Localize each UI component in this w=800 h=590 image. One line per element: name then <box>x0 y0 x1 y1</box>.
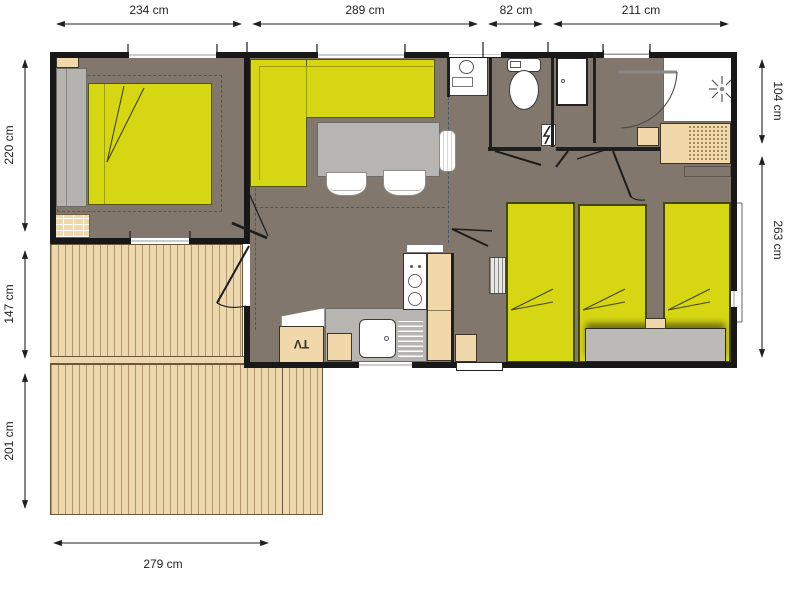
dim-label-left-1: 220 cm <box>2 125 16 164</box>
toilet-bowl <box>509 70 539 110</box>
window-kitchen-south <box>358 362 413 368</box>
single-bed-1 <box>506 202 575 363</box>
master-double-bed <box>88 83 212 205</box>
washbasin-counter <box>452 77 473 87</box>
master-bed-pillow-line <box>104 84 105 204</box>
dim-label-top-4: 211 cm <box>622 3 660 17</box>
dining-chair-2 <box>383 170 426 196</box>
wall-hall-a <box>488 147 541 151</box>
wall-west-lower-stub <box>244 305 250 368</box>
nightstand-bed-1 <box>455 334 477 362</box>
wall-hall-b <box>556 147 660 151</box>
chair-seat-line <box>387 187 422 191</box>
dim-label-top-3: 82 cm <box>500 3 533 17</box>
bed-storage-bench <box>585 328 726 362</box>
hall-cabinet <box>637 127 659 146</box>
master-wardrobe <box>56 68 87 207</box>
dim-label-right-1: 104 cm <box>771 81 785 120</box>
window-shower <box>603 50 650 58</box>
wall-east <box>731 52 737 368</box>
water-heater-knob <box>561 79 565 83</box>
dim-label-right-2: 263 cm <box>771 220 785 259</box>
dining-chair-3 <box>439 130 456 172</box>
dining-chair-1 <box>326 172 367 196</box>
wall-shower-west <box>593 52 596 143</box>
wall-wc-east <box>551 58 554 147</box>
master-dresser <box>52 214 90 238</box>
tv-cabinet: TV <box>279 326 324 363</box>
wall-master-east <box>244 58 250 238</box>
hall-wardrobe-hatch <box>688 125 729 162</box>
kitchen-shelf <box>406 244 444 253</box>
faucet <box>384 336 389 341</box>
toilet-flush-button <box>510 61 521 68</box>
patio-door-living <box>243 244 250 306</box>
deck-upper <box>50 244 243 357</box>
window-east-bedroom <box>731 290 737 308</box>
dining-table <box>317 122 440 177</box>
shower-tray <box>663 58 731 122</box>
nightstand-between-beds <box>645 318 666 329</box>
fridge-cabinet <box>427 253 452 361</box>
hall-shelf-outline <box>684 166 731 177</box>
sofa-backrest-line-v <box>259 66 260 180</box>
master-wardrobe-door-line <box>66 69 67 206</box>
stove-knob-1 <box>410 265 413 268</box>
sofa-backrest-line-h <box>259 66 433 67</box>
window-living <box>317 52 405 58</box>
kitchen-drainer <box>398 321 423 357</box>
entry-step <box>456 362 503 371</box>
patio-door-master <box>130 238 190 244</box>
deck-step-board <box>50 356 250 364</box>
master-shelf <box>56 57 79 68</box>
wall-basin-nook <box>447 58 450 97</box>
stove-knob-2 <box>418 265 421 268</box>
window-master <box>128 52 217 58</box>
tv-label: TV <box>280 327 323 362</box>
wall-west <box>50 52 56 244</box>
kitchen-sink <box>359 319 396 358</box>
window-wc <box>448 52 502 57</box>
sofa-seam-line <box>306 66 307 117</box>
dim-label-top-2: 289 cm <box>345 3 384 17</box>
east-window-bracket <box>737 203 742 322</box>
fridge-divider-line <box>428 310 451 311</box>
deck-plank-seam <box>282 364 283 515</box>
dim-label-left-2: 147 cm <box>2 284 16 323</box>
dim-label-left-3: 201 cm <box>2 421 16 460</box>
burner-2 <box>408 292 422 306</box>
radiator <box>489 257 506 294</box>
dim-label-top-1: 234 cm <box>129 3 168 17</box>
wall-kitchen-east <box>451 253 454 362</box>
washbasin-bowl <box>459 60 474 74</box>
floor-plan: TV <box>0 0 800 590</box>
burner-1 <box>408 274 422 288</box>
living-dashed-line-south <box>255 207 445 208</box>
chair-seat-line <box>330 187 363 191</box>
wall-wc-west <box>489 58 492 147</box>
dim-label-bottom-1: 279 cm <box>143 557 182 571</box>
kitchen-stool <box>327 333 352 361</box>
